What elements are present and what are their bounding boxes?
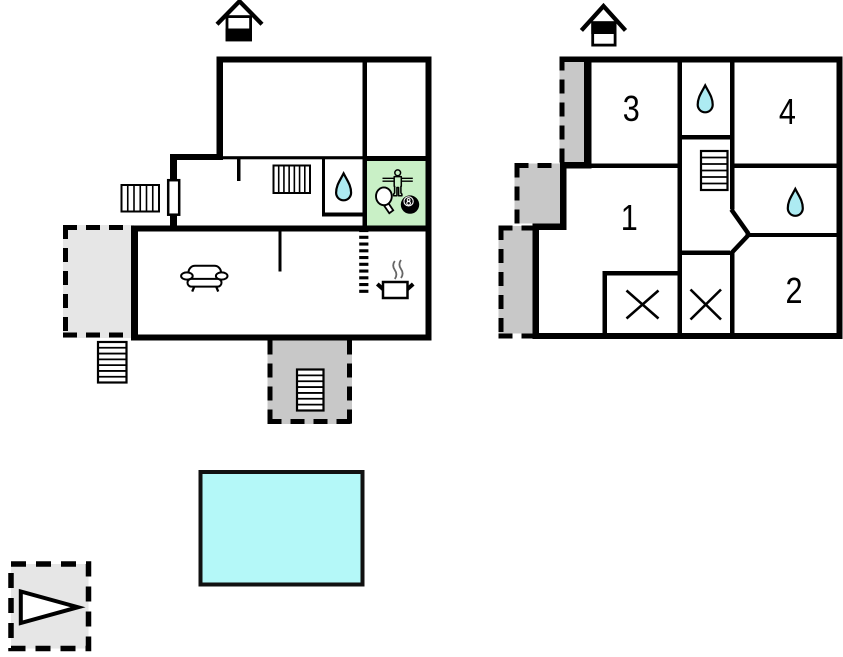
svg-text:4: 4 xyxy=(779,93,796,133)
svg-text:3: 3 xyxy=(623,90,640,130)
svg-text:1: 1 xyxy=(621,199,638,239)
svg-text:2: 2 xyxy=(785,272,802,312)
